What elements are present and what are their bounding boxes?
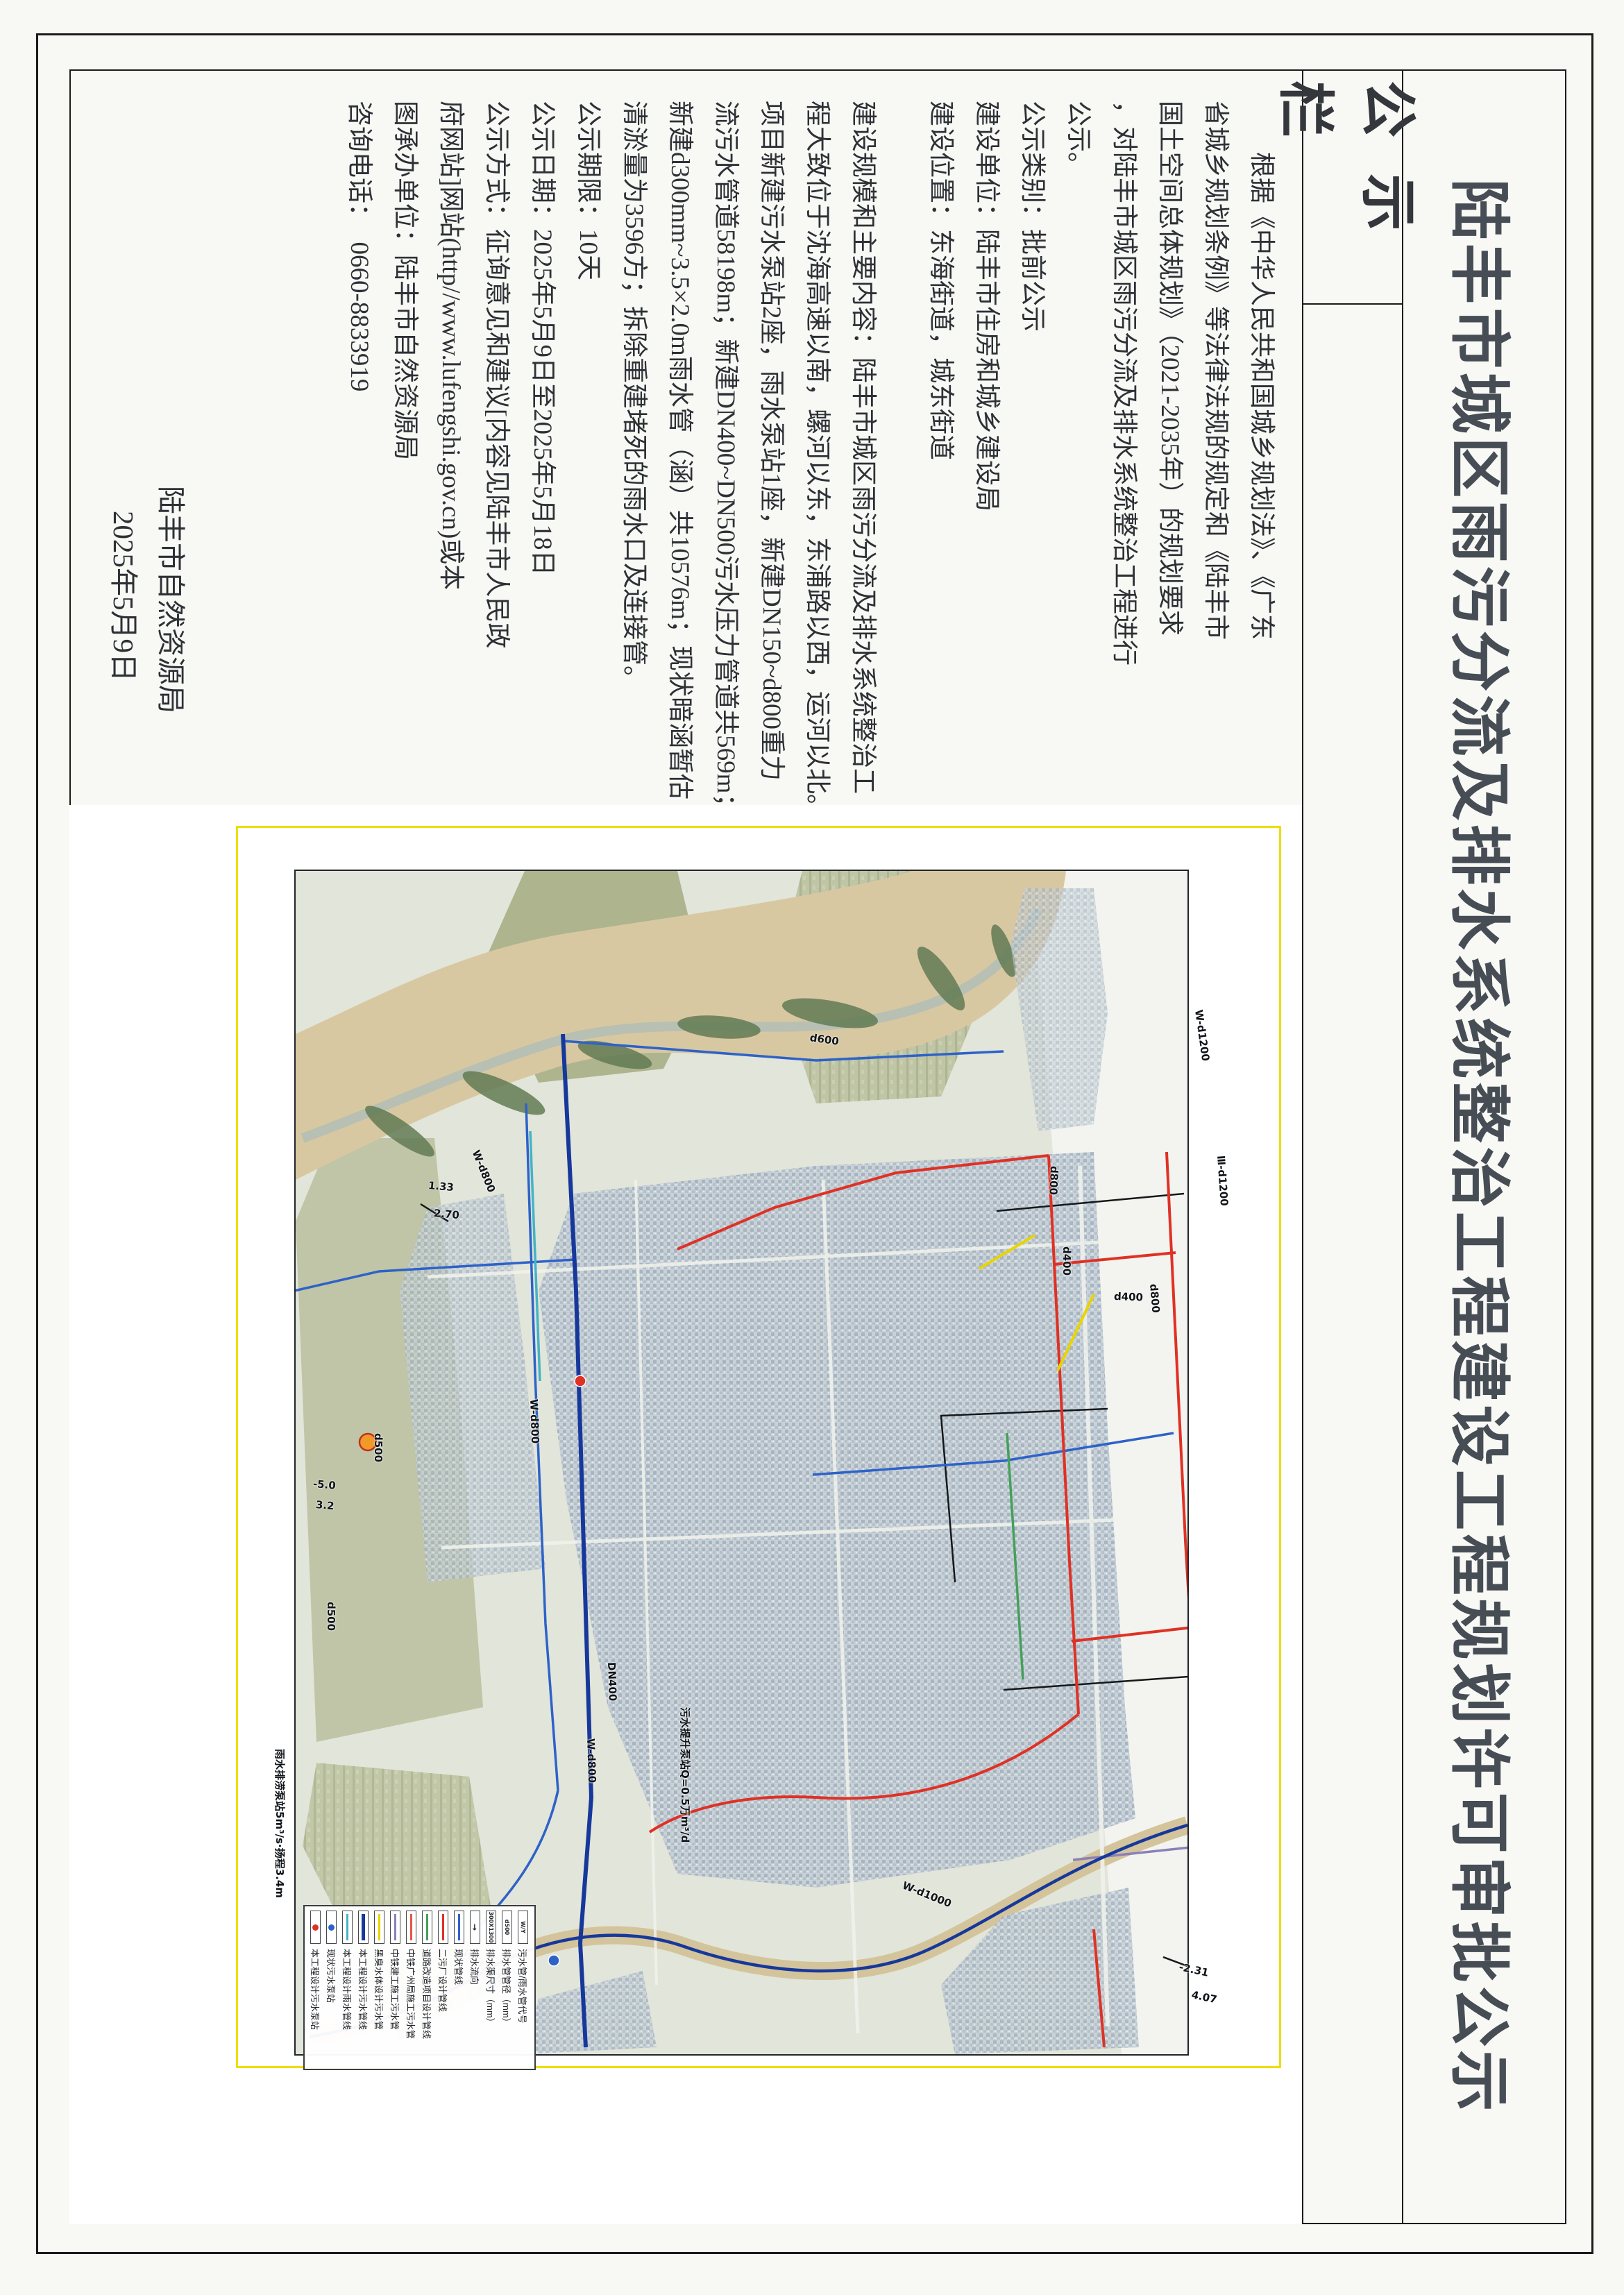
signature-date: 2025年5月9日 bbox=[105, 511, 147, 681]
legend-row: 300X1300排水渠尺寸（mm） bbox=[483, 1911, 499, 2065]
legend-label: 二污厂设计管线 bbox=[437, 1949, 450, 2012]
legend-row: W/Y污水管/雨水管代号 bbox=[515, 1911, 531, 2065]
legend-swatch: → bbox=[470, 1911, 480, 1944]
scanned-notice-page: { "notice": { "board_label": "公 示 栏", "t… bbox=[0, 0, 1624, 2295]
body-line-period: 公示期限：10天 bbox=[565, 101, 611, 802]
body-text: 根据《中华人民共和国城乡规划法》、《广东 省城乡规划条例》等法律法规的规定和《陆… bbox=[336, 101, 1284, 802]
legend-label: 排水管管径（mm） bbox=[500, 1949, 514, 2027]
legend-swatch: 300X1300 bbox=[486, 1911, 496, 1944]
legend-swatch bbox=[326, 1911, 337, 1944]
body-line-agency: 图承办单位：陆丰市自然资源局 bbox=[382, 101, 428, 802]
legend-label: 排水流向 bbox=[468, 1949, 482, 1985]
body-line-method: 公示方式：征询意见和建议[内容见陆丰市人民政 bbox=[473, 101, 519, 802]
body-line: 公示。 bbox=[1055, 101, 1101, 802]
legend-row: →排水流向 bbox=[467, 1911, 483, 2065]
signature-agency: 陆丰市自然资源局 bbox=[153, 486, 194, 713]
legend-label: 现状污水泵站 bbox=[325, 1949, 338, 2003]
planning-map bbox=[69, 805, 1302, 2224]
board-cell-bottom-border bbox=[1302, 303, 1403, 305]
body-line-scope: 建设规模和主要内容：陆丰市城区雨污分流及排水系统整治工 bbox=[840, 101, 886, 802]
legend-swatch bbox=[358, 1911, 369, 1944]
legend-row: 本工程设计污水管线 bbox=[355, 1911, 371, 2065]
legend-row: 中铁建工施工污水管 bbox=[387, 1911, 403, 2065]
body-line: ，对陆丰市城区雨污分流及排水系统整治工程进行 bbox=[1101, 101, 1147, 802]
legend-label: 中铁广州局施工污水管 bbox=[405, 1949, 418, 2039]
legend-row: 道路改造项目设计管线 bbox=[419, 1911, 435, 2065]
legend-swatch bbox=[374, 1911, 384, 1944]
board-header-cell: 公 示 栏 bbox=[1302, 69, 1402, 303]
legend-row: d500排水管管径（mm） bbox=[499, 1911, 515, 2065]
body-line: 流污水管道58198m；新建DN400~DN500污水压力管道共569m； bbox=[702, 101, 748, 802]
legend-swatch bbox=[454, 1911, 464, 1944]
legend-swatch bbox=[422, 1911, 432, 1944]
body-line: 新建d300mm~3.5×2.0m雨水管（涵）共10576m；现状暗涵暂估 bbox=[657, 101, 702, 802]
legend-swatch bbox=[342, 1911, 353, 1944]
legend-label: 黑臭水体设计污水管 bbox=[373, 1949, 386, 2030]
body-line-website: 府网站]网站(http//www.lufengshi.gov.cn)或本 bbox=[428, 101, 473, 802]
body-line: 项目新建污水泵站2座，雨水泵站1座，新建DN150~d800重力 bbox=[748, 101, 794, 802]
legend-label: 中铁建工施工污水管 bbox=[389, 1949, 402, 2030]
body-line: 根据《中华人民共和国城乡规划法》、《广东 bbox=[1238, 101, 1284, 802]
legend-swatch bbox=[310, 1911, 321, 1944]
legend-row: 现状污水泵站 bbox=[323, 1911, 339, 2065]
legend-swatch: d500 bbox=[502, 1911, 512, 1944]
body-line-phone: 咨询电话： 0660-8833919 bbox=[336, 101, 382, 802]
legend-row: 中铁广州局施工污水管 bbox=[403, 1911, 419, 2065]
body-text-cell: 根据《中华人民共和国城乡规划法》、《广东 省城乡规划条例》等法律法规的规定和《陆… bbox=[69, 69, 1302, 805]
title-column: 陆丰市城区雨污分流及排水系统整治工程建设工程规划许可审批公示 bbox=[1402, 69, 1566, 2224]
map-cell: W-d1200Ⅲ-d1200d800d800d400d400d600W-d800… bbox=[69, 805, 1302, 2224]
legend-swatch bbox=[438, 1911, 448, 1944]
legend-label: 污水管/雨水管代号 bbox=[516, 1949, 530, 2024]
legend-label: 现状管线 bbox=[452, 1949, 466, 1985]
body-line: 省城乡规划条例》等法律法规的规定和《陆丰市 bbox=[1192, 101, 1238, 802]
body-line-notice-type: 公示类别：批前公示 bbox=[1009, 101, 1055, 802]
legend-label: 排水渠尺寸（mm） bbox=[484, 1949, 498, 2027]
legend-row: 本工程设计雨水管线 bbox=[339, 1911, 355, 2065]
legend-swatch bbox=[406, 1911, 416, 1944]
pump-station-orange bbox=[360, 1434, 376, 1450]
satellite-imagery bbox=[294, 871, 1219, 2054]
legend-label: 本工程设计污水管线 bbox=[357, 1949, 370, 2030]
legend-label: 本工程设计雨水管线 bbox=[341, 1949, 354, 2030]
legend-row: 现状管线 bbox=[451, 1911, 467, 2065]
board-column-separator bbox=[1302, 69, 1303, 2224]
legend-label: 本工程设计污水泵站 bbox=[309, 1949, 322, 2030]
body-line: 清淤量为3596方；拆除重建堵死的雨水口及连接管。 bbox=[611, 101, 657, 802]
body-line-builder: 建设单位：陆丰市住房和城乡建设局 bbox=[963, 101, 1009, 802]
legend-row: 黑臭水体设计污水管 bbox=[371, 1911, 387, 2065]
legend-row: 本工程设计污水泵站 bbox=[307, 1911, 323, 2065]
pump-station-blue bbox=[548, 1955, 559, 1966]
legend-swatch: W/Y bbox=[518, 1911, 528, 1944]
body-line-dates: 公示日期：2025年5月9日至2025年5月18日 bbox=[519, 101, 565, 802]
body-line: 国土空间总体规划》（2021-2035年）的规划要求 bbox=[1147, 101, 1192, 802]
map-legend: W/Y污水管/雨水管代号d500排水管管径（mm）300X1300排水渠尺寸（m… bbox=[303, 1905, 536, 2070]
legend-label: 道路改造项目设计管线 bbox=[421, 1949, 434, 2039]
document-title: 陆丰市城区雨污分流及排水系统整治工程建设工程规划许可审批公示 bbox=[1402, 69, 1566, 2224]
board-label: 公 示 栏 bbox=[1302, 69, 1402, 303]
legend-row: 二污厂设计管线 bbox=[435, 1911, 451, 2065]
body-line: 程大致位于沈海高速以南，螺河以东，东浦路以西，运河以北。 bbox=[794, 101, 840, 802]
body-line-location: 建设位置：东海街道，城东街道 bbox=[917, 101, 963, 802]
legend-swatch bbox=[390, 1911, 400, 1944]
pump-station-red bbox=[575, 1375, 586, 1387]
